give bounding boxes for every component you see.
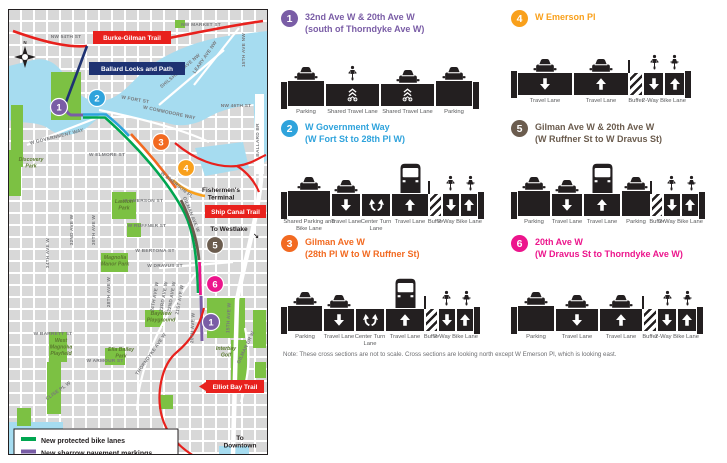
section-5-badge: 5 — [511, 120, 528, 137]
arrow-up-marking — [682, 314, 692, 326]
svg-text:1: 1 — [56, 103, 62, 114]
lane-icons — [555, 271, 599, 309]
road-segment — [356, 309, 384, 331]
footnote: Note: These cross sections are not to sc… — [283, 351, 721, 358]
sidewalk-curb — [478, 192, 484, 219]
svg-text:1: 1 — [208, 318, 214, 329]
lane-icons — [287, 43, 325, 81]
section-1-title: 32nd Ave W & 20th Ave W(south of Thorndy… — [305, 10, 424, 35]
section-2: 2 W Government Way(W Fort St to 28th Pl … — [281, 120, 499, 237]
svg-text:NW MARKET ST: NW MARKET ST — [181, 22, 221, 28]
road-segment — [426, 309, 437, 331]
road-segment — [443, 194, 477, 216]
lane-label: 2-Way Bike Lane — [658, 216, 704, 237]
marker-3: 3 — [153, 134, 170, 151]
lane-icons — [323, 271, 355, 309]
road-segment — [552, 194, 582, 216]
lane-icons — [573, 35, 629, 73]
svg-text:↘: ↘ — [253, 233, 259, 240]
svg-text:W BARRETT ST: W BARRETT ST — [34, 331, 73, 337]
section-3-title: Gilman Ave W(28th Pl W to W Ruffner St) — [305, 235, 420, 260]
svg-text:6: 6 — [212, 280, 217, 291]
svg-text:28TH AVE W: 28TH AVE W — [106, 277, 112, 308]
bike-lane-northbound — [682, 194, 698, 216]
flex-post-icon — [424, 296, 426, 309]
cyclist-icon — [445, 173, 456, 193]
lane-icons — [643, 35, 685, 73]
car-icon — [327, 294, 351, 308]
cyclist-icon — [666, 173, 677, 193]
road-segment — [439, 309, 473, 331]
marker-1b: 1 — [203, 314, 220, 331]
lane-icons — [551, 156, 583, 194]
bike-lane-southbound — [644, 73, 663, 95]
lane-label: 2-Way Bike Lane — [433, 331, 479, 352]
lane-icons — [429, 156, 442, 194]
car-icon — [524, 291, 548, 305]
section-3: 3 Gilman Ave W(28th Pl W to W Ruffner St… — [281, 235, 499, 352]
lane-icons — [599, 271, 643, 309]
lane-shared-travel-lane: Shared Travel Lane — [325, 46, 380, 127]
svg-text:W RUFFNER ST: W RUFFNER ST — [128, 223, 167, 229]
road-segment — [600, 309, 642, 331]
bike-lane-southbound — [664, 194, 680, 216]
flex-post-icon — [428, 181, 430, 194]
lane-icons — [385, 271, 425, 309]
lane-icons — [583, 156, 621, 194]
svg-text:W BERTONA ST: W BERTONA ST — [135, 248, 174, 254]
svg-text:Burke-Gilman Trail: Burke-Gilman Trail — [103, 35, 161, 42]
arrow-up-marking — [596, 78, 606, 90]
car-icon — [396, 69, 420, 83]
road-segment — [658, 309, 696, 331]
arrow-down-marking — [446, 199, 456, 211]
road-segment — [332, 194, 360, 216]
cyclist-icon — [669, 52, 680, 72]
cyclist-icon — [649, 52, 660, 72]
lane-travel-lane: Travel Lane — [517, 35, 573, 116]
bike-lane-northbound — [461, 194, 477, 216]
lane-icons — [643, 271, 657, 309]
cyclist-icon — [682, 288, 693, 308]
lane-icons — [629, 35, 643, 73]
sharrow-marking — [401, 88, 414, 102]
arrow-down-marking — [341, 199, 351, 211]
section-2-cross-section: Shared Parking and Bike LaneTravel LaneC… — [281, 153, 499, 237]
lane-2-way-bike-lane: 2-Way Bike Lane — [442, 156, 478, 237]
section-6-badge: 6 — [511, 235, 528, 252]
road-segment — [324, 309, 354, 331]
svg-text:2: 2 — [94, 94, 99, 105]
cyclist-icon — [461, 288, 472, 308]
lane-icons — [331, 156, 361, 194]
cyclist-icon — [686, 173, 697, 193]
road-segment — [381, 84, 434, 106]
lane-2-way-bike-lane: 2-Way Bike Lane — [438, 271, 474, 352]
bike-lane-southbound — [443, 194, 459, 216]
flex-post-icon — [628, 60, 630, 73]
cyclist-icon — [441, 288, 452, 308]
road-segment — [574, 73, 628, 95]
marker-5: 5 — [207, 237, 224, 254]
lane-icons — [657, 271, 697, 309]
lane-icons — [380, 46, 435, 84]
arrow-up-marking — [616, 314, 626, 326]
lane-shared-parking-and-bike-lane: Shared Parking and Bike Lane — [287, 153, 331, 237]
cyclist-icon — [347, 63, 358, 83]
lane-icons — [621, 153, 651, 191]
bike-lane-southbound — [439, 309, 455, 331]
svg-text:30TH AVE W: 30TH AVE W — [91, 215, 97, 246]
lane-icons — [442, 156, 478, 194]
section-6-segment — [200, 262, 201, 295]
svg-text:Ship Canal Trail: Ship Canal Trail — [211, 209, 260, 216]
car-icon — [589, 58, 613, 72]
flex-post-icon — [642, 296, 644, 309]
car-icon — [533, 58, 557, 72]
arrow-down-marking — [667, 199, 677, 211]
road-segment — [664, 194, 698, 216]
section-6-title: 20th Ave W(W Dravus St to Thorndyke Ave … — [535, 235, 683, 260]
section-6-cross-section: ParkingTravel LaneTravel LaneBuffer2-Way… — [511, 268, 727, 352]
bike-lane-southbound — [658, 309, 676, 331]
svg-text:3: 3 — [158, 138, 163, 149]
lane-icons — [438, 271, 474, 309]
sidewalk-curb — [697, 307, 703, 334]
svg-text:N: N — [23, 40, 26, 45]
road-segment — [288, 306, 322, 331]
lane-travel-lane: Travel Lane — [555, 271, 599, 352]
arrow-down-marking — [334, 314, 344, 326]
svg-text:BALLARD BR: BALLARD BR — [255, 123, 261, 157]
road-segment — [362, 194, 390, 216]
lane-icons — [391, 156, 429, 194]
cyclist-icon — [465, 173, 476, 193]
lane-parking: Parking — [435, 43, 473, 127]
bike-project-flyer: N NW MARKET ST NW 54TH ST LEARY AVE NW S… — [0, 0, 727, 463]
lane-icons — [517, 153, 551, 191]
arrow-down-marking — [562, 199, 572, 211]
arrow-down-marking — [442, 314, 452, 326]
car-icon — [334, 179, 358, 193]
road-segment — [652, 194, 662, 216]
sidewalk-curb — [473, 82, 479, 109]
car-icon — [294, 66, 318, 80]
svg-text:MagnoliaManor Park: MagnoliaManor Park — [101, 255, 130, 268]
legend-swatch-sharrow — [21, 450, 36, 454]
lane-travel-lane: Travel Lane — [599, 271, 643, 352]
road-segment — [622, 191, 650, 216]
sidewalk-curb — [699, 192, 705, 219]
arrow-up-marking — [400, 314, 410, 326]
lane-icons — [517, 35, 573, 73]
bus-icon — [394, 278, 417, 308]
bike-lane-northbound — [678, 309, 696, 331]
lane-icons — [355, 271, 385, 309]
svg-text:15TH AVE NW: 15TH AVE NW — [241, 33, 247, 67]
bike-lane-northbound — [457, 309, 473, 331]
lane-icons — [361, 156, 391, 194]
bike-lane-northbound — [665, 73, 684, 95]
svg-text:W ELMORE ST: W ELMORE ST — [89, 152, 125, 158]
lane-shared-travel-lane: Shared Travel Lane — [380, 46, 435, 127]
road-segment — [518, 306, 554, 331]
road-segment — [644, 309, 656, 331]
arrow-down-marking — [540, 78, 550, 90]
marker-2: 2 — [89, 90, 106, 107]
lane-icons — [651, 156, 663, 194]
road-segment — [386, 309, 424, 331]
section-6: 6 20th Ave W(W Dravus St to Thorndyke Av… — [511, 235, 727, 352]
road-segment — [430, 194, 441, 216]
section-4-badge: 4 — [511, 10, 528, 27]
lane-travel-lane: Travel Lane — [385, 271, 425, 352]
sharrow-marking — [346, 88, 359, 102]
section-3-badge: 3 — [281, 235, 298, 252]
car-icon — [624, 176, 648, 190]
marker-1: 1 — [51, 99, 68, 116]
svg-text:NW 46TH ST: NW 46TH ST — [221, 103, 252, 109]
legend-swatch-protected — [21, 437, 36, 441]
lane-icons — [425, 271, 438, 309]
section-2-badge: 2 — [281, 120, 298, 137]
road-segment — [630, 73, 642, 95]
arrow-up-marking — [597, 199, 607, 211]
sidewalk-curb — [474, 307, 480, 334]
svg-text:34TH AVE W: 34TH AVE W — [45, 238, 51, 269]
arrow-up-marking — [405, 199, 415, 211]
lane-2-way-bike-lane: 2-Way Bike Lane — [663, 156, 699, 237]
road-segment — [288, 191, 330, 216]
section-1-badge: 1 — [281, 10, 298, 27]
turn-arrows-marking — [362, 314, 379, 326]
svg-text:Elliot Bay Trail: Elliot Bay Trail — [213, 384, 258, 391]
lane-icons — [287, 268, 323, 306]
road-segment — [518, 191, 550, 216]
road-segment — [326, 84, 379, 106]
lane-icons — [663, 156, 699, 194]
section-3-cross-section: ParkingTravel LaneCenter Turn LaneTravel… — [281, 268, 499, 352]
arrow-down-marking — [649, 78, 659, 90]
section-1: 1 32nd Ave W & 20th Ave W(south of Thorn… — [281, 10, 499, 127]
arrow-up-marking — [460, 314, 470, 326]
section-4-title: W Emerson Pl — [535, 10, 596, 23]
lane-travel-lane: Travel Lane — [573, 35, 629, 116]
car-icon — [609, 294, 633, 308]
road-segment — [392, 194, 428, 216]
road-segment — [288, 81, 324, 106]
svg-text:5: 5 — [212, 241, 218, 252]
road-segment — [436, 81, 472, 106]
turn-arrows-marking — [368, 199, 385, 211]
flex-post-icon — [650, 181, 652, 194]
svg-text:Ballard Locks and Path: Ballard Locks and Path — [101, 66, 173, 73]
lane-2-way-bike-lane: 2-Way Bike Lane — [657, 271, 697, 352]
arrow-down-marking — [572, 314, 582, 326]
map-legend: New protected bike lanes New sharrow pav… — [14, 429, 178, 454]
car-icon — [297, 176, 321, 190]
lane-label: 2-Way Bike Lane — [437, 216, 483, 237]
car-icon — [442, 66, 466, 80]
lane-icons — [287, 153, 331, 191]
svg-text:New protected bike lanes: New protected bike lanes — [41, 438, 125, 445]
project-map: N NW MARKET ST NW 54TH ST LEARY AVE NW S… — [8, 9, 268, 455]
lane-label: 2-Way Bike Lane — [638, 95, 690, 116]
road-segment — [584, 194, 620, 216]
car-icon — [565, 294, 589, 308]
arrow-up-marking — [685, 199, 695, 211]
arrow-down-marking — [662, 314, 672, 326]
road-segment — [556, 309, 598, 331]
lane-icons — [435, 43, 473, 81]
svg-text:W DRAVUS ST: W DRAVUS ST — [147, 263, 182, 269]
svg-text:New sharrow pavement markings: New sharrow pavement markings — [41, 451, 152, 455]
svg-text:4: 4 — [183, 164, 189, 175]
sidewalk-curb — [685, 71, 691, 98]
lane-icons — [517, 268, 555, 306]
lane-label: 2-Way Bike Lane — [652, 331, 702, 352]
section-5-title: Gilman Ave W & 20th Ave W(W Ruffner St t… — [535, 120, 662, 145]
lane-2-way-bike-lane: 2-Way Bike Lane — [643, 35, 685, 116]
bus-icon — [591, 163, 614, 193]
marker-6: 6 — [207, 276, 224, 293]
svg-text:32ND AVE W: 32ND AVE W — [69, 214, 75, 245]
cyclist-icon — [662, 288, 673, 308]
section-4: 4 W Emerson Pl Travel LaneTravel LaneBuf… — [511, 10, 727, 116]
marker-4: 4 — [178, 160, 195, 177]
section-5-cross-section: ParkingTravel LaneTravel LaneParkingBuff… — [511, 153, 727, 237]
svg-text:NW 54TH ST: NW 54TH ST — [51, 34, 82, 40]
svg-text:To Westlake: To Westlake — [210, 226, 248, 233]
road-segment — [518, 73, 572, 95]
car-icon — [555, 179, 579, 193]
section-2-title: W Government Way(W Fort St to 28th Pl W) — [305, 120, 405, 145]
section-5: 5 Gilman Ave W & 20th Ave W(W Ruffner St… — [511, 120, 727, 237]
car-icon — [522, 176, 546, 190]
lane-icons — [325, 46, 380, 84]
car-icon — [293, 291, 317, 305]
section-1-cross-section: ParkingShared Travel LaneShared Travel L… — [281, 43, 499, 127]
map-canvas: N NW MARKET ST NW 54TH ST LEARY AVE NW S… — [9, 10, 267, 454]
bus-icon — [399, 163, 422, 193]
arrow-up-marking — [464, 199, 474, 211]
road-segment — [644, 73, 684, 95]
arrow-up-marking — [670, 78, 680, 90]
section-4-cross-section: Travel LaneTravel LaneBuffer2-Way Bike L… — [511, 35, 727, 116]
